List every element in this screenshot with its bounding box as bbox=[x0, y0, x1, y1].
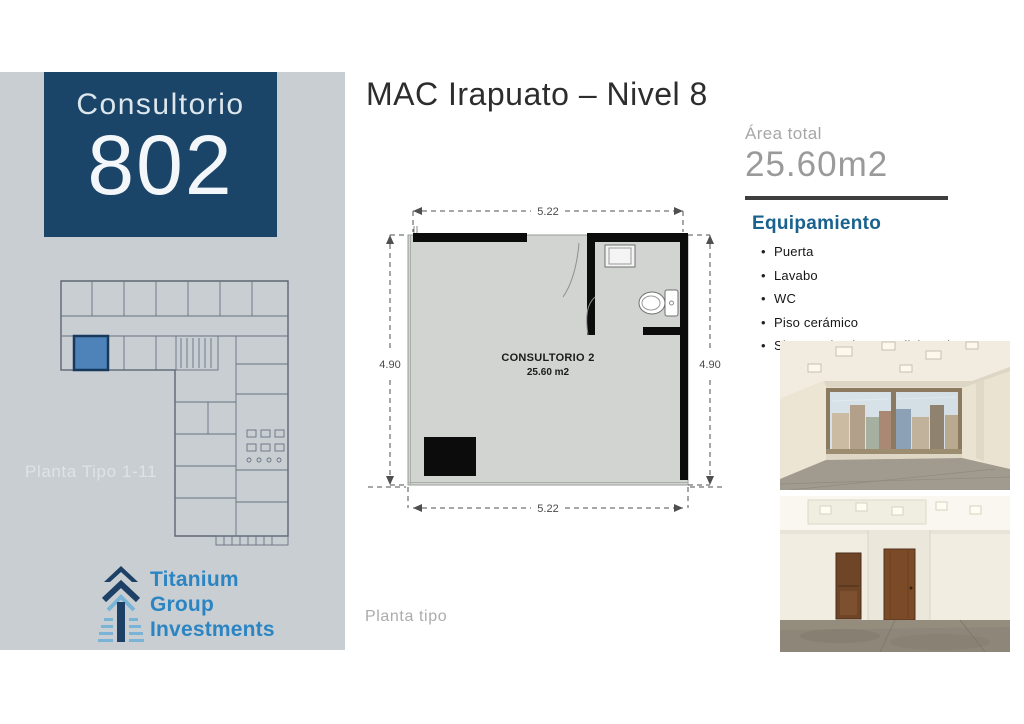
dim-right: 4.90 bbox=[699, 359, 720, 371]
logo-line-titanium: Titanium bbox=[150, 567, 275, 592]
page-title: MAC Irapuato – Nivel 8 bbox=[366, 76, 708, 113]
equipment-item-lavabo: Lavabo bbox=[774, 268, 985, 283]
titanium-logo-icon bbox=[98, 566, 144, 646]
unit-card-number: 802 bbox=[44, 124, 277, 206]
room-label: CONSULTORIO 2 bbox=[501, 352, 594, 364]
titanium-logo: Titanium Group Investments bbox=[98, 566, 275, 646]
titanium-logo-text: Titanium Group Investments bbox=[150, 567, 275, 646]
render-photo-office-window bbox=[780, 341, 1010, 490]
unit-card-label: Consultorio bbox=[44, 88, 277, 122]
equipment-item-piso: Piso cerámico bbox=[774, 315, 985, 330]
plan-caption: Planta tipo bbox=[365, 608, 447, 626]
sidebar: Consultorio 802 bbox=[0, 72, 345, 650]
toilet-icon bbox=[665, 290, 678, 316]
mini-plan-unit-highlight bbox=[74, 336, 108, 370]
render-photo-room-doors bbox=[780, 496, 1010, 652]
equipment-item-puerta: Puerta bbox=[774, 244, 985, 259]
equipment-list: Puerta Lavabo WC Piso cerámico Sistema d… bbox=[745, 244, 985, 353]
logo-line-group: Group bbox=[150, 592, 275, 617]
unit-card: Consultorio 802 bbox=[44, 72, 277, 237]
area-total-value: 25.60m2 bbox=[745, 145, 985, 185]
divider-rule bbox=[745, 196, 948, 200]
logo-line-investments: Investments bbox=[150, 617, 275, 642]
equipment-item-wc: WC bbox=[774, 291, 985, 306]
details-panel: Área total 25.60m2 Equipamiento Puerta L… bbox=[745, 124, 985, 362]
dim-bottom: 5.22 bbox=[537, 503, 558, 515]
equipment-title: Equipamiento bbox=[752, 213, 985, 235]
room-area-label: 25.60 m2 bbox=[527, 367, 570, 378]
floor-caption: Planta Tipo 1-11 bbox=[25, 462, 157, 482]
mini-floor-plan bbox=[56, 274, 293, 546]
dim-left: 4.90 bbox=[379, 359, 400, 371]
page: Consultorio 802 bbox=[0, 0, 1024, 724]
area-total-label: Área total bbox=[745, 124, 985, 144]
floor-plan: 5.22 5.22 4.90 4.90 CONSULTORIO 2 25.60 … bbox=[366, 198, 726, 528]
dim-top: 5.22 bbox=[537, 206, 558, 218]
